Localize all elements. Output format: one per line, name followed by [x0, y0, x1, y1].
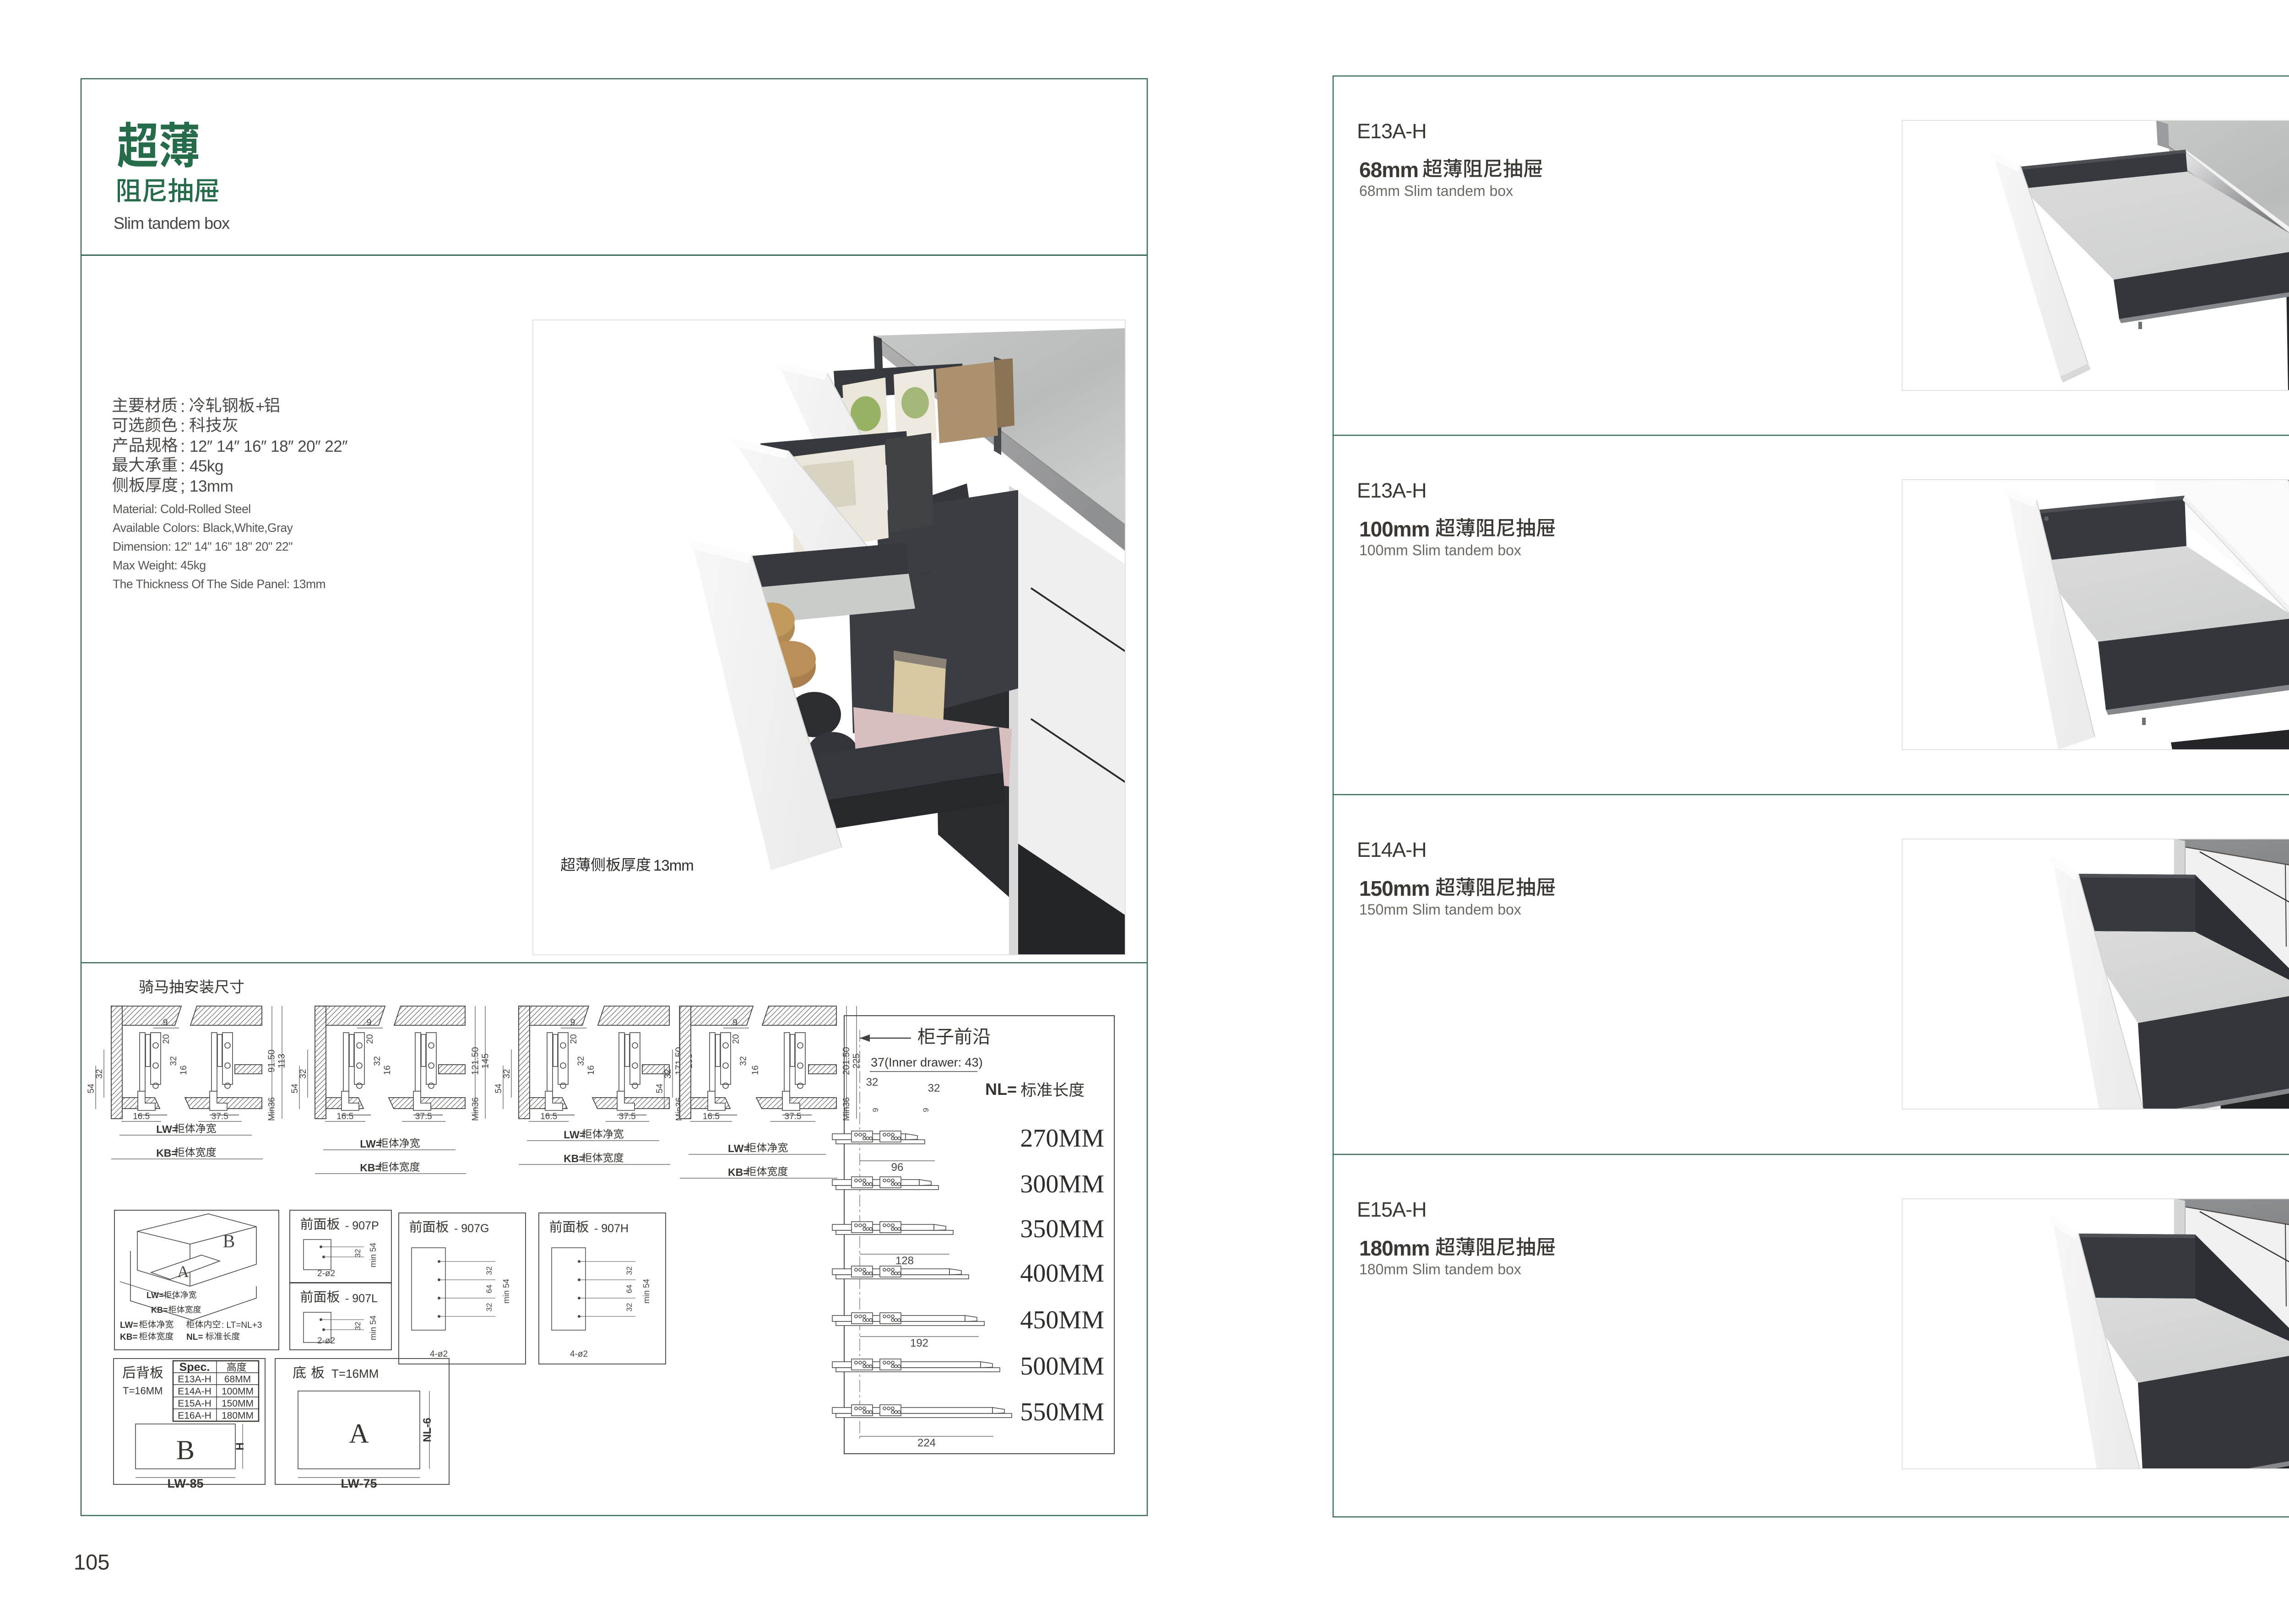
svg-text:224: 224: [917, 1437, 936, 1449]
svg-text:NL=: NL=: [985, 1080, 1017, 1099]
svg-text:32: 32: [353, 1249, 362, 1258]
svg-text:68MM: 68MM: [224, 1374, 251, 1385]
svg-text:E15A-H: E15A-H: [178, 1398, 212, 1409]
svg-text:A: A: [349, 1418, 369, 1449]
svg-text:B: B: [223, 1231, 235, 1251]
svg-text:;: ;: [180, 476, 185, 495]
svg-text:32: 32: [739, 1056, 749, 1066]
svg-text:min 54: min 54: [369, 1243, 378, 1267]
svg-text:32: 32: [625, 1267, 634, 1275]
svg-text:T=16MM: T=16MM: [123, 1385, 163, 1397]
svg-text:128: 128: [895, 1255, 914, 1267]
svg-text:13mm: 13mm: [190, 477, 233, 495]
svg-text:E14A-H: E14A-H: [1357, 838, 1427, 861]
svg-text:32: 32: [298, 1069, 308, 1078]
svg-text:KB=: KB=: [151, 1305, 168, 1315]
svg-text:Slim tandem box: Slim tandem box: [114, 214, 230, 233]
svg-text:E16A-H: E16A-H: [178, 1411, 212, 1421]
svg-text:16: 16: [383, 1065, 392, 1075]
svg-text:32: 32: [576, 1056, 586, 1066]
svg-text:32: 32: [485, 1267, 494, 1275]
svg-text:105: 105: [74, 1550, 109, 1574]
svg-text:NL=: NL=: [186, 1332, 203, 1342]
svg-text:LW=: LW=: [156, 1123, 178, 1135]
svg-text:16.5: 16.5: [703, 1112, 720, 1121]
svg-text:121.50: 121.50: [471, 1047, 481, 1075]
svg-text:192: 192: [910, 1337, 928, 1349]
svg-text:180mm Slim tandem box: 180mm Slim tandem box: [1359, 1261, 1521, 1278]
svg-text:B: B: [176, 1435, 195, 1465]
svg-text:201.50: 201.50: [841, 1047, 852, 1075]
svg-text:45kg: 45kg: [190, 457, 223, 475]
svg-text:- 907G: - 907G: [454, 1222, 489, 1235]
svg-text:180mm: 180mm: [1359, 1236, 1430, 1260]
svg-text:64: 64: [485, 1285, 494, 1294]
svg-text:- 907P: - 907P: [345, 1219, 379, 1232]
svg-text:150mm Slim tandem box: 150mm Slim tandem box: [1359, 901, 1521, 918]
svg-text:E14A-H: E14A-H: [178, 1386, 212, 1397]
svg-text:32: 32: [625, 1303, 634, 1312]
svg-text:37.5: 37.5: [415, 1112, 432, 1121]
svg-text:NL-6: NL-6: [421, 1418, 434, 1442]
svg-text:16: 16: [586, 1065, 596, 1075]
svg-text:100MM: 100MM: [222, 1386, 254, 1397]
svg-text:150mm: 150mm: [1359, 877, 1430, 900]
svg-text:37.5: 37.5: [619, 1112, 636, 1121]
svg-text:4-ø2: 4-ø2: [430, 1349, 448, 1359]
svg-text:54: 54: [290, 1083, 300, 1093]
svg-text:- 907L: - 907L: [345, 1292, 378, 1305]
svg-text:68mm: 68mm: [1359, 158, 1418, 182]
svg-text:32: 32: [502, 1069, 512, 1078]
svg-text:LW=: LW=: [728, 1142, 750, 1154]
svg-text:20: 20: [732, 1034, 741, 1044]
svg-text:150MM: 150MM: [222, 1398, 254, 1409]
svg-text:Material: Cold-Rolled Steel: Material: Cold-Rolled Steel: [113, 502, 251, 516]
svg-text:9: 9: [732, 1018, 738, 1028]
svg-text:550MM: 550MM: [1020, 1398, 1104, 1426]
svg-text:LW=: LW=: [360, 1138, 382, 1150]
svg-text:+: +: [255, 398, 265, 416]
svg-text:32: 32: [485, 1303, 494, 1312]
svg-text:Max Weight: 45kg: Max Weight: 45kg: [113, 558, 206, 572]
svg-text:Min36: Min36: [471, 1097, 481, 1121]
svg-text:H: H: [234, 1442, 246, 1450]
svg-text:145: 145: [481, 1053, 491, 1068]
svg-text:32: 32: [866, 1076, 879, 1088]
svg-text:68mm Slim tandem box: 68mm Slim tandem box: [1359, 183, 1513, 199]
svg-text:16.5: 16.5: [540, 1112, 557, 1121]
svg-text:37(Inner drawer: 43): 37(Inner drawer: 43): [871, 1056, 983, 1069]
svg-text:16.5: 16.5: [133, 1112, 150, 1121]
svg-text:LW=: LW=: [146, 1291, 164, 1300]
svg-text:180MM: 180MM: [222, 1411, 254, 1421]
svg-text:54: 54: [87, 1083, 96, 1093]
svg-text:20: 20: [365, 1034, 375, 1044]
svg-text:9: 9: [367, 1018, 372, 1028]
svg-text:9: 9: [570, 1018, 575, 1028]
svg-text:12″ 14″ 16″ 18″ 20″ 22″: 12″ 14″ 16″ 18″ 20″ 22″: [190, 438, 347, 455]
svg-text:91.50: 91.50: [267, 1050, 277, 1072]
svg-text:2-ø2: 2-ø2: [317, 1336, 335, 1346]
svg-text:min 54: min 54: [502, 1279, 511, 1304]
svg-text:Dimension: 12" 14" 16" 18" 20": Dimension: 12" 14" 16" 18" 20" 22": [113, 540, 293, 553]
svg-text:KB=: KB=: [120, 1332, 138, 1342]
svg-text:500MM: 500MM: [1020, 1352, 1104, 1380]
svg-text:16: 16: [179, 1065, 189, 1075]
svg-text:KB=: KB=: [728, 1166, 749, 1178]
svg-text:A: A: [177, 1262, 189, 1281]
svg-text:KB=: KB=: [156, 1147, 178, 1159]
svg-text:Min36: Min36: [267, 1097, 277, 1121]
svg-text:4-ø2: 4-ø2: [570, 1349, 588, 1359]
svg-text:37.5: 37.5: [212, 1112, 228, 1121]
svg-text:100mm: 100mm: [1359, 517, 1430, 541]
svg-text:T=16MM: T=16MM: [331, 1367, 379, 1380]
svg-text:Available Colors: Black,White,: Available Colors: Black,White,Gray: [113, 521, 293, 535]
svg-text:9: 9: [871, 1108, 880, 1112]
svg-text:LW-75: LW-75: [341, 1477, 377, 1490]
svg-text::: :: [180, 397, 185, 416]
svg-text:113: 113: [277, 1054, 287, 1068]
svg-text:min 54: min 54: [369, 1315, 378, 1340]
svg-text:20: 20: [569, 1034, 579, 1044]
svg-text:32: 32: [169, 1056, 179, 1066]
svg-text:LW-85: LW-85: [168, 1477, 204, 1490]
svg-text:96: 96: [891, 1161, 904, 1174]
svg-text:450MM: 450MM: [1020, 1306, 1104, 1334]
svg-text:32: 32: [373, 1056, 382, 1066]
svg-text:The Thickness Of The Side Pane: The Thickness Of The Side Panel: 13mm: [113, 577, 325, 591]
svg-text:54: 54: [494, 1083, 504, 1093]
svg-text:KB=: KB=: [360, 1162, 381, 1174]
svg-text:E13A-H: E13A-H: [1357, 479, 1427, 502]
svg-text:: LT=NL+3: : LT=NL+3: [222, 1321, 262, 1330]
svg-text:32: 32: [95, 1069, 104, 1078]
svg-text:9: 9: [922, 1108, 930, 1112]
svg-text:400MM: 400MM: [1020, 1259, 1104, 1288]
svg-text::: :: [180, 437, 185, 455]
svg-text:20: 20: [162, 1034, 171, 1044]
svg-text:Spec.: Spec.: [179, 1361, 210, 1374]
svg-text:E13A-H: E13A-H: [1357, 119, 1427, 143]
svg-text:2-ø2: 2-ø2: [317, 1269, 335, 1278]
svg-text:13mm: 13mm: [653, 857, 694, 874]
svg-text:Min36: Min36: [842, 1097, 852, 1121]
svg-text:37.5: 37.5: [785, 1112, 802, 1121]
svg-text:32: 32: [928, 1082, 940, 1094]
svg-text:225: 225: [852, 1053, 862, 1068]
svg-text:54: 54: [655, 1083, 665, 1093]
svg-text:270MM: 270MM: [1020, 1124, 1104, 1153]
svg-text::: :: [180, 417, 185, 435]
svg-text:E15A-H: E15A-H: [1357, 1198, 1427, 1221]
svg-text:16.5: 16.5: [336, 1112, 353, 1121]
svg-text:32: 32: [663, 1069, 673, 1078]
svg-text:32: 32: [353, 1322, 362, 1331]
svg-text::: :: [180, 456, 185, 475]
svg-text:min 54: min 54: [642, 1279, 651, 1304]
svg-text:- 907H: - 907H: [594, 1222, 629, 1235]
svg-text:KB=: KB=: [564, 1153, 585, 1164]
svg-text:64: 64: [625, 1285, 634, 1294]
svg-text:350MM: 350MM: [1020, 1215, 1104, 1243]
svg-text:16: 16: [751, 1065, 760, 1075]
svg-text:300MM: 300MM: [1020, 1170, 1104, 1198]
svg-text:LW=: LW=: [120, 1321, 138, 1330]
svg-text:E13A-H: E13A-H: [178, 1374, 212, 1385]
svg-text:100mm Slim tandem box: 100mm Slim tandem box: [1359, 542, 1521, 558]
svg-text:LW=: LW=: [564, 1129, 586, 1141]
svg-text:9: 9: [163, 1018, 168, 1028]
